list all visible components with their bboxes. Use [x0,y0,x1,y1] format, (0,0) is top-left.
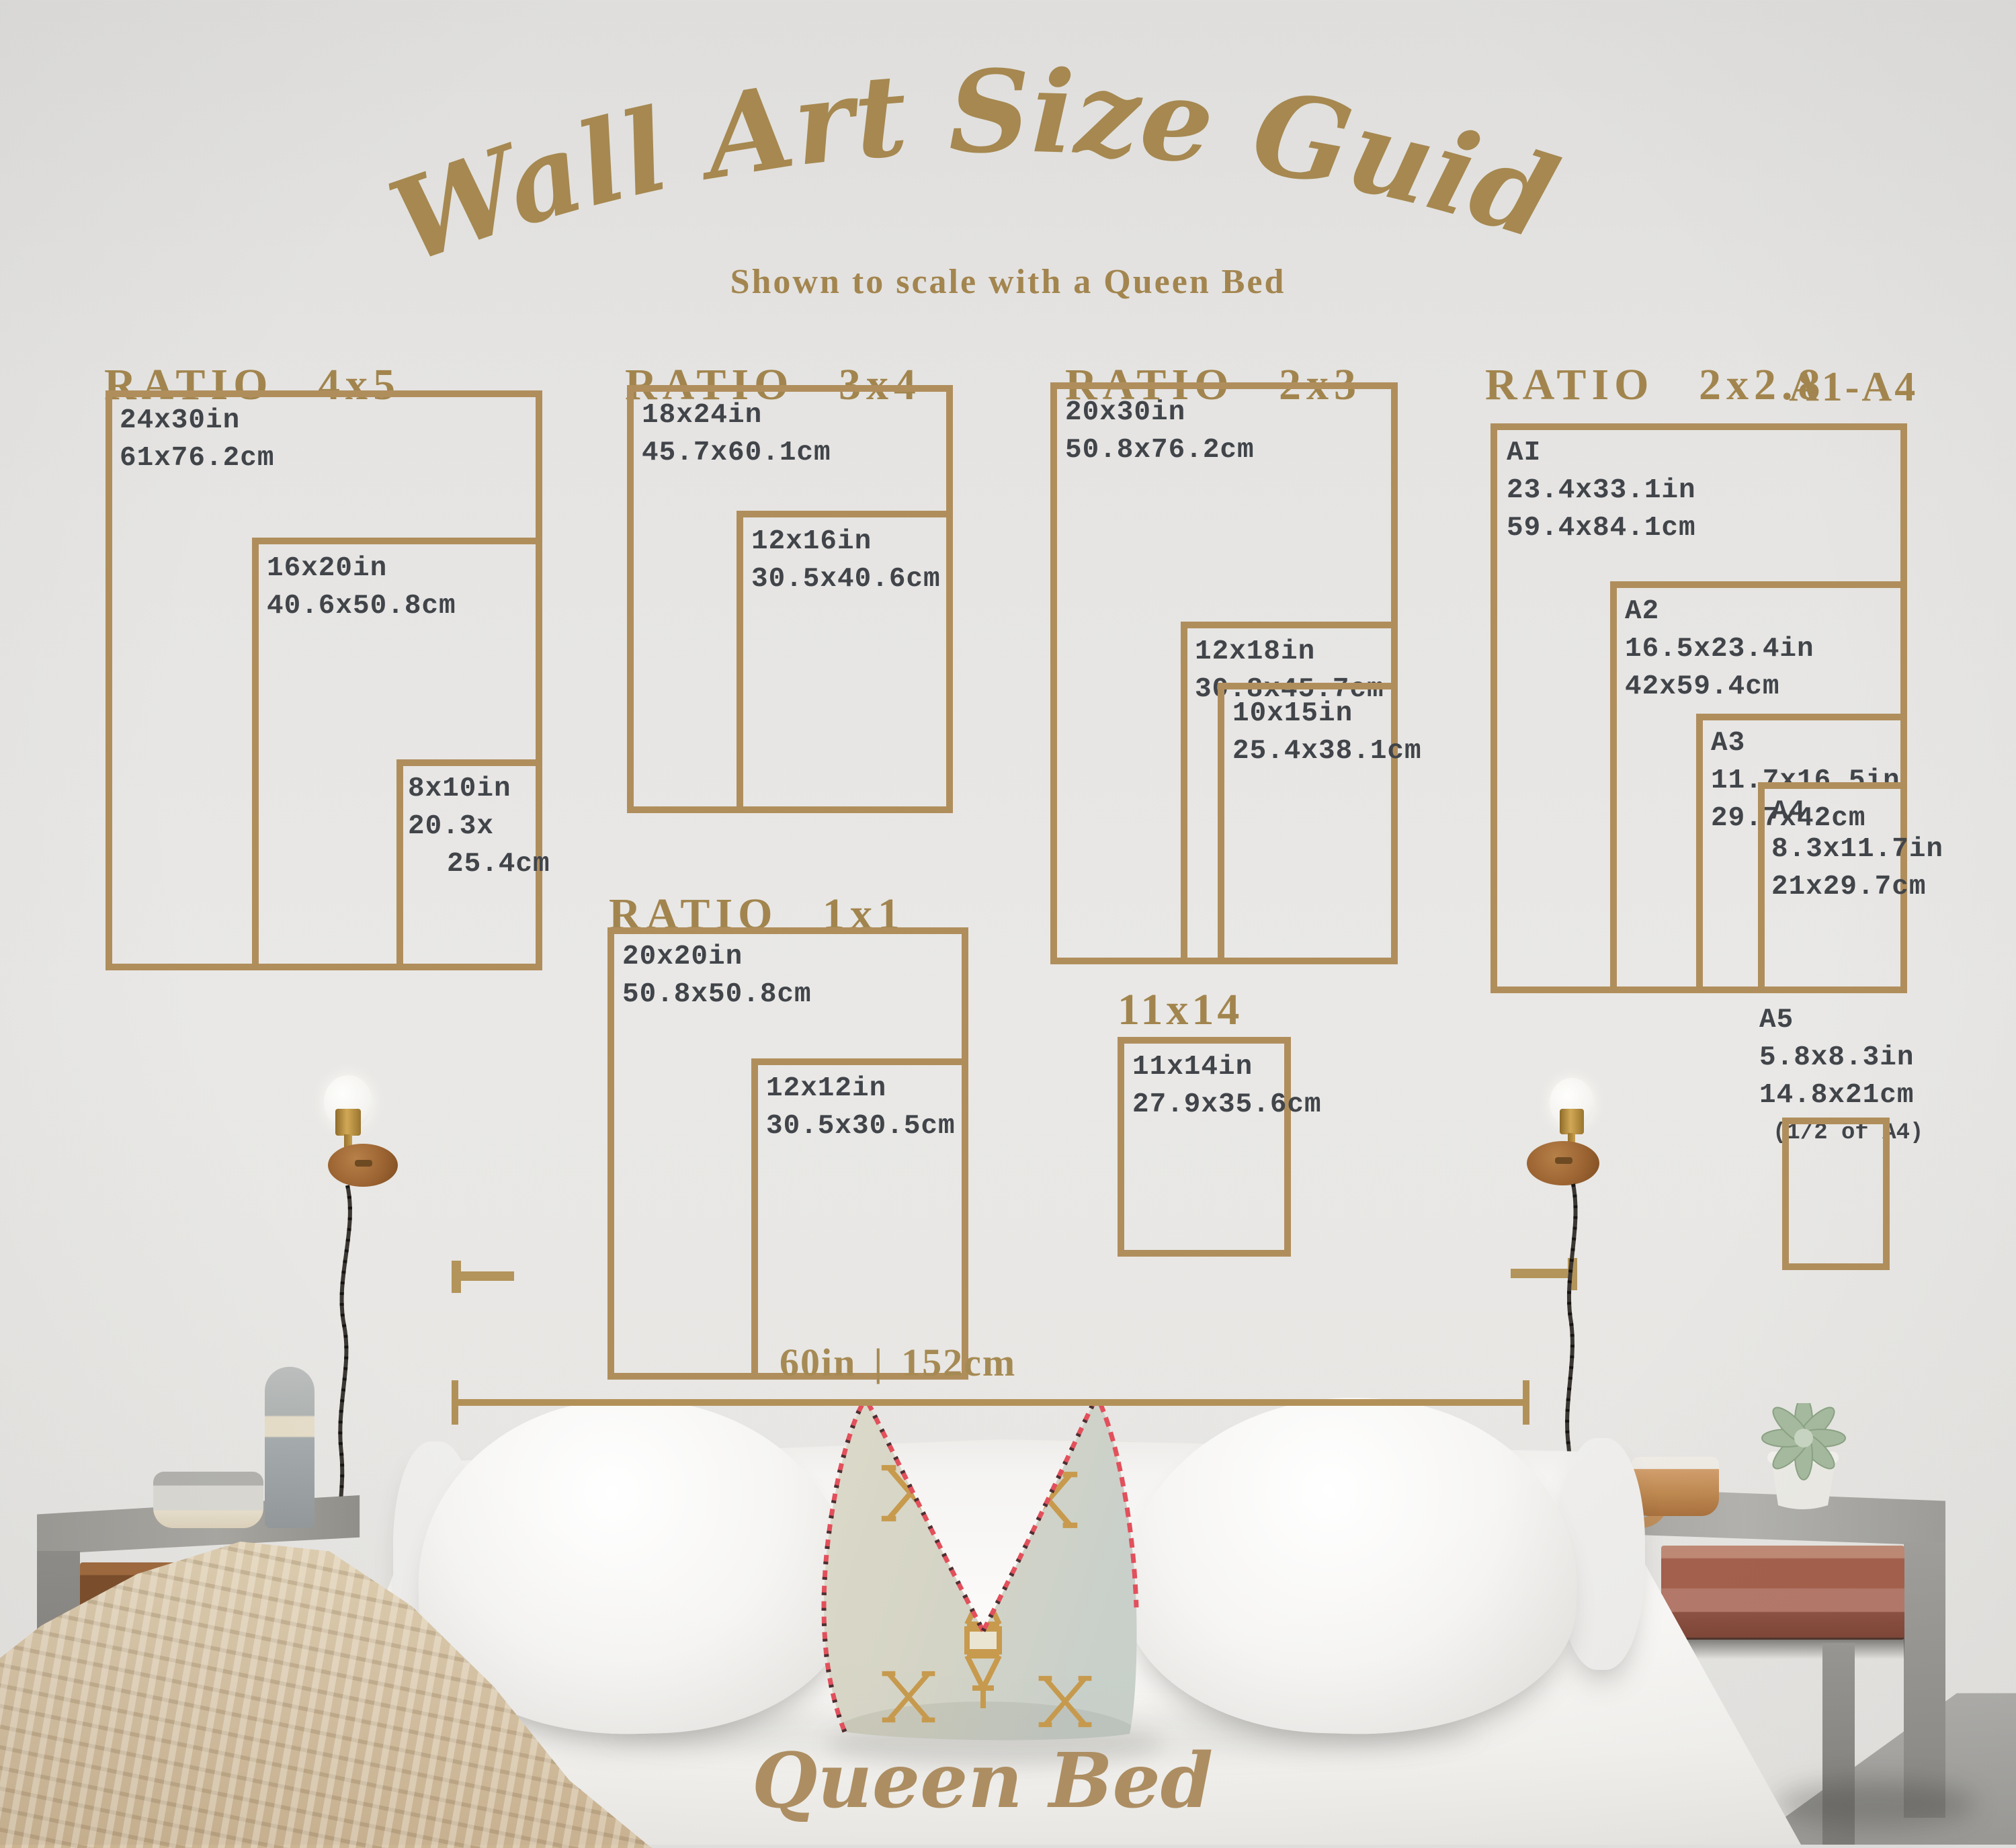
size-line: 5.8x8.3in [1759,1039,1923,1077]
size-line: 8.3x11.7in [1771,831,1943,868]
bed-frame-rail-right [1511,1269,1572,1278]
size-line: 45.7x60.1cm [642,434,831,472]
size-label-24x30: 24x30in 61x76.2cm [120,402,274,477]
size-line: 30.5x30.5cm [766,1107,956,1145]
size-line: 25.4x38.1cm [1232,732,1422,770]
ceramic-bowl [153,1472,263,1528]
lumbar-pillow [803,1392,1166,1759]
size-line: 11x14in [1132,1048,1322,1086]
size-label-8x10: 8x10in 20.3x 25.4cm [408,770,550,883]
measurement-divider: | [874,1340,884,1385]
measurement-line [452,1399,1529,1406]
size-line: 61x76.2cm [120,439,274,477]
measurement-tick-right [1523,1380,1529,1425]
bed-frame-rail-left [457,1271,514,1281]
size-line: AI [1507,434,1696,472]
size-line: 25.4cm [408,845,550,883]
size-line: 16.5x23.4in [1625,630,1814,668]
svg-text:Wall Art Size Guide: Wall Art Size Guide [323,44,1571,289]
size-label-18x24: 18x24in 45.7x60.1cm [642,396,831,472]
size-label-a2: A2 16.5x23.4in 42x59.4cm [1625,593,1814,706]
size-line: A2 [1625,593,1814,630]
size-line: 16x20in [267,550,456,587]
size-line: 27.9x35.6cm [1132,1086,1322,1124]
size-line: 20x30in [1065,394,1255,431]
size-label-a4: A4 8.3x11.7in 21x29.7cm [1771,793,1943,906]
page-subtitle: Shown to scale with a Queen Bed [730,262,1286,302]
size-line: 20x20in [622,938,812,976]
measurement-tick-left [452,1380,458,1425]
size-label-10x15: 10x15in 25.4x38.1cm [1232,695,1422,770]
size-line: 30.5x40.6cm [751,560,941,598]
size-label-12x12: 12x12in 30.5x30.5cm [766,1070,956,1145]
ceramic-vase [265,1367,314,1528]
size-line: 12x16in [751,523,941,560]
sconce-base-pin [355,1160,372,1167]
section-heading-a1-a4: A1-A4 [1789,365,1918,409]
size-label-16x20: 16x20in 40.6x50.8cm [267,550,456,625]
size-line: A3 [1711,724,1900,762]
size-label-20x30: 20x30in 50.8x76.2cm [1065,394,1255,469]
size-line: 10x15in [1232,695,1422,732]
size-rect-a5 [1782,1118,1890,1270]
sconce-socket [335,1109,361,1136]
size-line: A5 [1759,1001,1923,1039]
size-label-12x16: 12x16in 30.5x40.6cm [751,523,941,598]
size-label-20x20: 20x20in 50.8x50.8cm [622,938,812,1013]
sconce-socket [1560,1109,1584,1134]
size-line: 14.8x21cm [1759,1077,1923,1114]
size-line: 50.8x50.8cm [622,976,812,1013]
size-line: 50.8x76.2cm [1065,431,1255,469]
under-nightstand-shadow [1774,1781,1976,1828]
ceramic-mug [1632,1457,1719,1516]
succulent-plant [1739,1403,1867,1521]
bed-frame-cap-right [1568,1258,1577,1290]
size-label-11x14: 11x14in 27.9x35.6cm [1132,1048,1322,1124]
size-line: 23.4x33.1in [1507,472,1696,509]
size-line: 21x29.7cm [1771,868,1943,906]
page-title: Wall Art Size Guide [323,44,1571,289]
size-label-a1: AI 23.4x33.1in 59.4x84.1cm [1507,434,1696,547]
nightstand-drawer [1661,1546,1904,1640]
sconce-base-pin [1555,1157,1572,1164]
size-line: 59.4x84.1cm [1507,509,1696,547]
size-line: 8x10in [408,770,550,808]
bed-label: Queen Bed [752,1737,1213,1825]
measurement-cm: 152cm [901,1340,1016,1385]
section-heading-2x2-8: RATIO 2x2.8 [1485,363,1825,407]
size-line: 12x12in [766,1070,956,1107]
size-line: 40.6x50.8cm [267,587,456,625]
section-heading-11x14: 11x14 [1118,988,1243,1032]
bed-frame-cap-left [452,1261,461,1293]
size-line: A4 [1771,793,1943,831]
size-line: 12x18in [1195,633,1384,671]
bed-width-measurement: 60in | 152cm [780,1340,1016,1385]
size-line: 18x24in [642,396,831,434]
size-line: 24x30in [120,402,274,439]
title-arc: Wall Art Size Guide [323,44,1693,300]
measurement-inches: 60in [780,1340,856,1385]
nightstand-side-panel [1904,1542,1945,1818]
size-line: 20.3x [408,808,550,845]
size-line: 42x59.4cm [1625,668,1814,706]
nightstand-drawer-shadow [1661,1638,1904,1659]
